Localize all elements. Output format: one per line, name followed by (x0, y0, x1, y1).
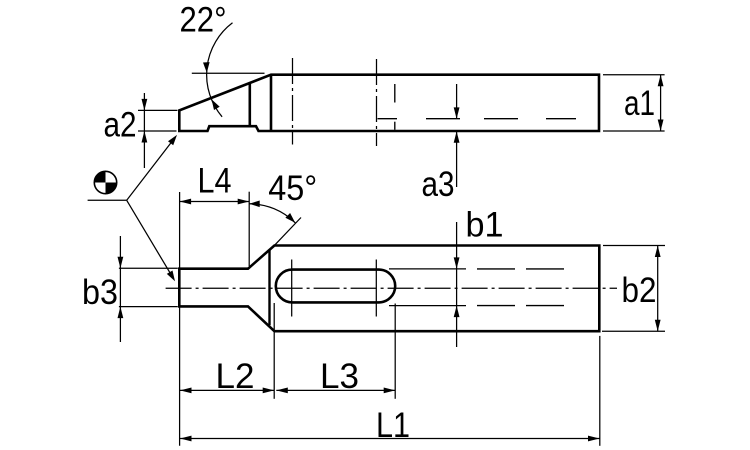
svg-text:22°: 22° (180, 1, 227, 40)
svg-text:a1: a1 (624, 84, 655, 123)
svg-text:L3: L3 (320, 357, 359, 396)
svg-text:L2: L2 (216, 357, 255, 396)
svg-text:a2: a2 (104, 106, 137, 145)
svg-text:45°: 45° (268, 169, 317, 208)
svg-text:b3: b3 (82, 273, 118, 312)
svg-text:a3: a3 (422, 165, 455, 204)
svg-text:L1: L1 (376, 406, 410, 445)
svg-text:b1: b1 (466, 206, 504, 245)
svg-text:b2: b2 (622, 271, 657, 310)
svg-text:L4: L4 (198, 162, 232, 201)
